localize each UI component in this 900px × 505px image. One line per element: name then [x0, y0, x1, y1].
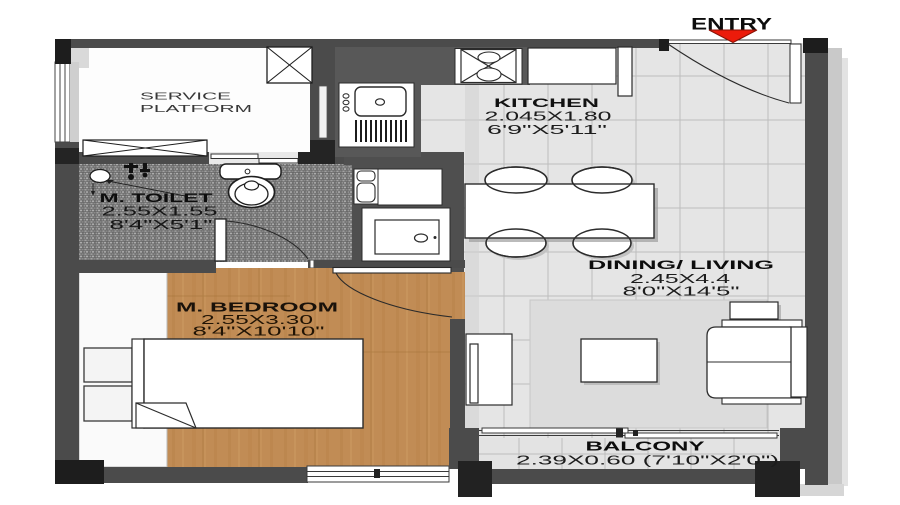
svg-text:2.39X0.60 (7'10"X2'0"): 2.39X0.60 (7'10"X2'0") — [516, 453, 779, 468]
svg-text:ENTRY: ENTRY — [691, 15, 773, 34]
svg-text:8'0"X14'5": 8'0"X14'5" — [623, 284, 741, 299]
svg-text:8'4"X5'1": 8'4"X5'1" — [110, 217, 214, 232]
svg-text:BALCONY: BALCONY — [586, 439, 706, 454]
svg-text:8'4"X10'10": 8'4"X10'10" — [193, 324, 326, 339]
svg-text:6'9"X5'11": 6'9"X5'11" — [487, 122, 608, 137]
svg-text:SERVICE: SERVICE — [140, 91, 231, 103]
svg-text:PLATFORM: PLATFORM — [140, 103, 252, 115]
svg-text:DINING/ LIVING: DINING/ LIVING — [588, 258, 774, 272]
